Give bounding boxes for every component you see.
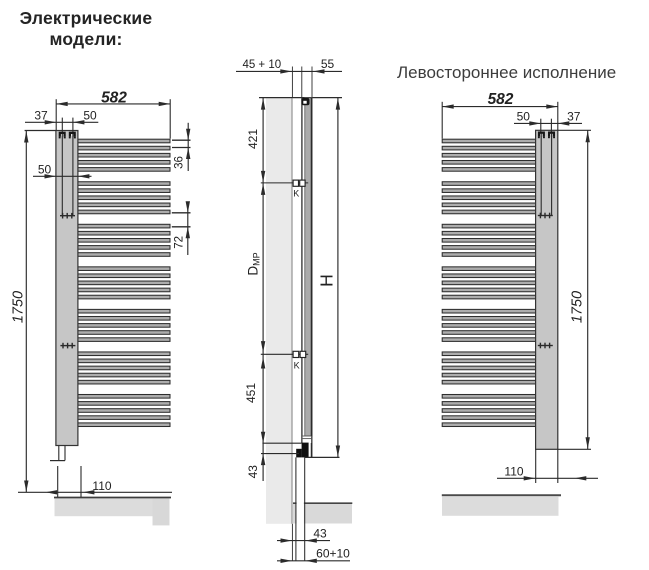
svg-text:43: 43 xyxy=(246,465,260,479)
svg-text:37: 37 xyxy=(567,109,581,123)
svg-text:582: 582 xyxy=(101,90,127,107)
svg-text:110: 110 xyxy=(92,479,111,493)
svg-text:582: 582 xyxy=(488,91,514,108)
svg-text:451: 451 xyxy=(244,383,258,403)
svg-text:110: 110 xyxy=(504,464,523,478)
svg-text:1750: 1750 xyxy=(11,291,27,323)
svg-text:37: 37 xyxy=(34,108,48,122)
svg-text:55: 55 xyxy=(321,57,335,71)
svg-text:421: 421 xyxy=(246,129,260,149)
svg-text:60+10: 60+10 xyxy=(316,547,350,561)
svg-text:DMP: DMP xyxy=(246,252,262,275)
svg-text:K: K xyxy=(293,189,299,199)
svg-text:45 + 10: 45 + 10 xyxy=(242,59,281,71)
svg-text:43: 43 xyxy=(313,527,327,541)
svg-text:50: 50 xyxy=(83,108,97,122)
svg-text:H: H xyxy=(317,274,337,287)
svg-text:72: 72 xyxy=(174,236,186,249)
svg-text:36: 36 xyxy=(174,156,186,169)
svg-text:50: 50 xyxy=(38,163,52,177)
svg-text:K: K xyxy=(294,361,300,371)
svg-text:50: 50 xyxy=(517,109,531,123)
svg-text:1750: 1750 xyxy=(570,291,586,323)
